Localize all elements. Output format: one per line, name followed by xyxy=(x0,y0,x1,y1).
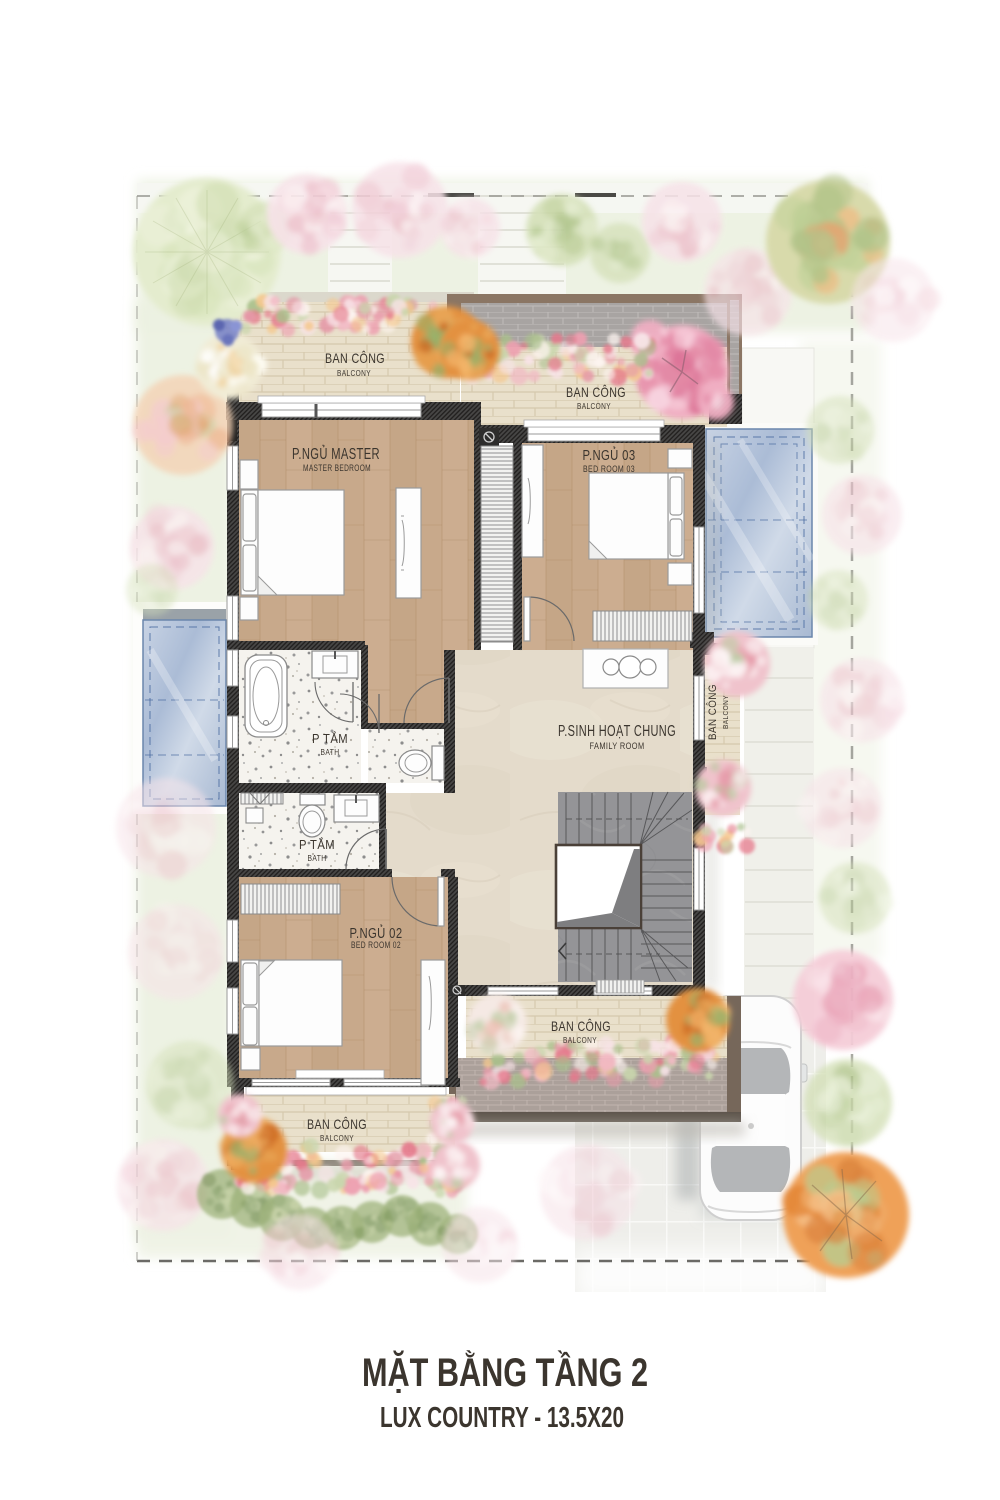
svg-text:BED ROOM 02: BED ROOM 02 xyxy=(351,940,401,951)
svg-text:BAN CÔNG: BAN CÔNG xyxy=(551,1018,611,1034)
svg-text:BAN CÔNG: BAN CÔNG xyxy=(706,684,719,740)
svg-text:P.SINH HOẠT CHUNG: P.SINH HOẠT CHUNG xyxy=(558,723,676,740)
svg-text:MASTER BEDROOM: MASTER BEDROOM xyxy=(303,463,371,474)
svg-text:BALCONY: BALCONY xyxy=(337,368,371,378)
svg-text:BATH: BATH xyxy=(321,747,340,757)
svg-text:P.NGỦ MASTER: P.NGỦ MASTER xyxy=(292,445,380,463)
svg-text:MẶT BẰNG TẦNG 2: MẶT BẰNG TẦNG 2 xyxy=(362,1349,648,1395)
svg-text:BALCONY: BALCONY xyxy=(320,1133,354,1143)
svg-text:BALCONY: BALCONY xyxy=(721,695,730,729)
svg-text:P TẮM: P TẮM xyxy=(299,837,335,852)
svg-text:BATH: BATH xyxy=(308,853,327,863)
svg-text:BALCONY: BALCONY xyxy=(577,401,611,411)
svg-text:BED ROOM 03: BED ROOM 03 xyxy=(583,464,635,475)
svg-text:BAN CÔNG: BAN CÔNG xyxy=(566,384,626,400)
svg-text:FAMILY ROOM: FAMILY ROOM xyxy=(590,741,645,752)
svg-text:P TẮM: P TẮM xyxy=(312,731,348,746)
svg-text:LUX COUNTRY - 13.5X20: LUX COUNTRY - 13.5X20 xyxy=(380,1402,624,1434)
svg-text:BAN CÔNG: BAN CÔNG xyxy=(325,350,385,366)
svg-text:BALCONY: BALCONY xyxy=(563,1035,597,1045)
svg-text:P.NGỦ 03: P.NGỦ 03 xyxy=(583,446,636,464)
svg-text:BAN CÔNG: BAN CÔNG xyxy=(307,1116,367,1132)
